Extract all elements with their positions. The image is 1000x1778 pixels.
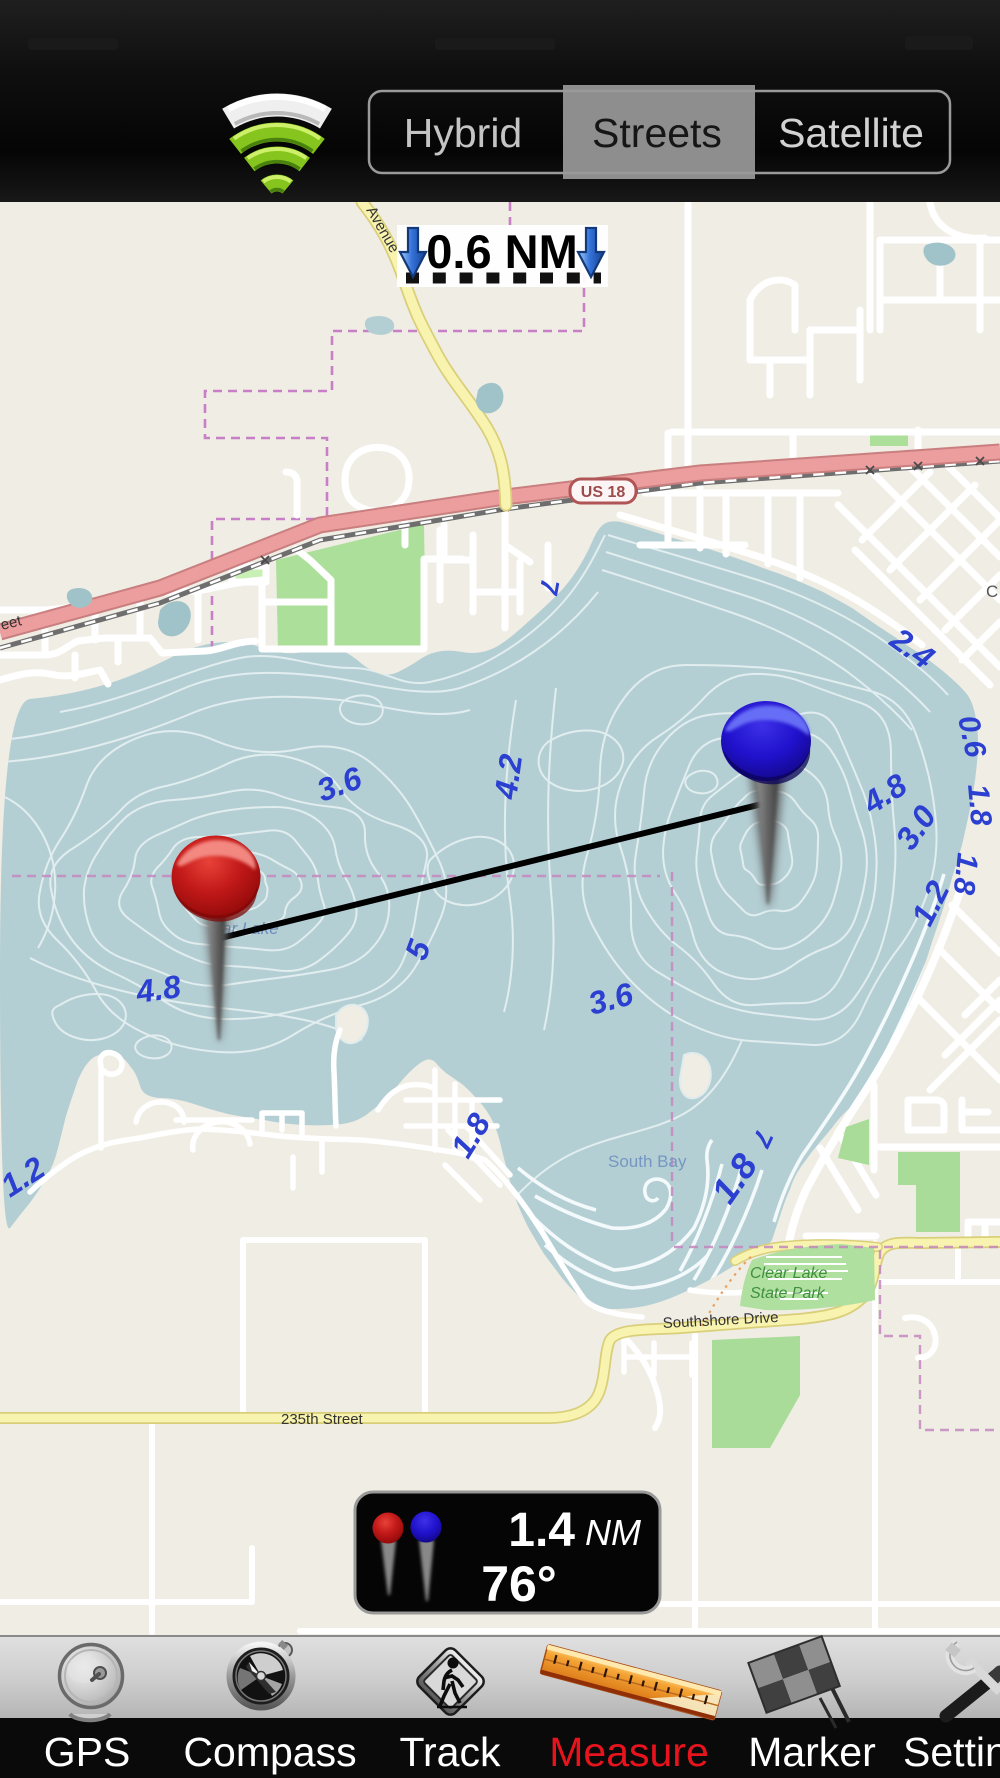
svg-text:State Park: State Park [750,1285,826,1302]
svg-text:Compass: Compass [183,1729,356,1775]
svg-text:C: C [986,582,998,601]
svg-text:GPS: GPS [44,1729,131,1775]
svg-text:Settings: Settings [903,1729,1000,1775]
svg-text:NM: NM [585,1512,641,1553]
svg-text:Clear Lake: Clear Lake [750,1265,827,1282]
svg-text:1.8: 1.8 [961,783,998,828]
svg-text:235th Street: 235th Street [281,1411,364,1428]
svg-text:South Bay: South Bay [608,1152,687,1171]
svg-text:4.2: 4.2 [487,752,529,802]
svg-text:Hybrid: Hybrid [404,110,522,156]
svg-text:Satellite: Satellite [778,110,924,156]
svg-text:1.4: 1.4 [508,1504,575,1557]
svg-text:4.8: 4.8 [133,968,183,1010]
svg-text:US 18: US 18 [581,484,626,501]
svg-text:0.6 NM: 0.6 NM [426,225,578,278]
svg-text:Streets: Streets [592,110,722,156]
svg-text:Measure: Measure [549,1729,709,1775]
svg-text:76°: 76° [481,1556,557,1612]
svg-text:Marker: Marker [748,1729,876,1775]
svg-text:Track: Track [400,1729,501,1775]
